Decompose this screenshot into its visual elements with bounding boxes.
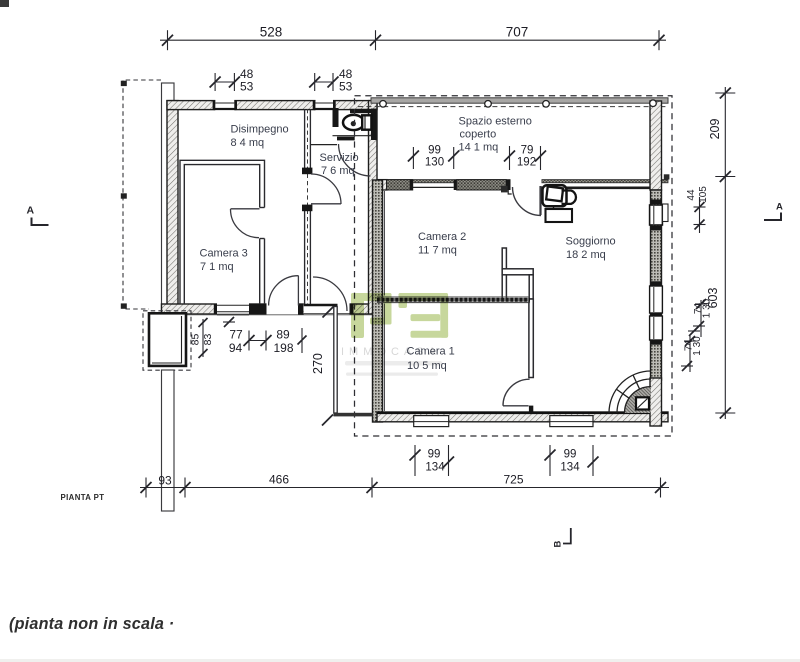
svg-text:89: 89 [276,328,290,342]
svg-text:134: 134 [560,462,580,474]
svg-text:134: 134 [425,462,445,474]
svg-text:44: 44 [686,189,697,201]
svg-text:1 30: 1 30 [702,298,713,318]
svg-text:IMMOCASA: IMMOCASA [341,346,441,358]
svg-text:A: A [27,205,35,217]
svg-text:53: 53 [240,80,254,94]
svg-text:coperto: coperto [460,129,497,141]
svg-text:Camera 3: Camera 3 [200,248,248,260]
svg-text:1 30: 1 30 [692,336,703,356]
svg-text:707: 707 [506,25,529,40]
svg-text:93: 93 [158,474,172,488]
svg-text:18 2 mq: 18 2 mq [566,249,606,261]
svg-text:8 4 mq: 8 4 mq [231,137,265,149]
svg-text:270: 270 [311,353,325,374]
svg-text:Soggiorno: Soggiorno [566,236,616,248]
svg-text:130: 130 [425,157,444,169]
svg-text:14 1 mq: 14 1 mq [459,142,499,154]
svg-text:A: A [776,202,783,213]
svg-text:53: 53 [339,80,353,94]
svg-text:Servizio: Servizio [320,152,359,164]
svg-text:105: 105 [698,186,709,203]
svg-text:85: 85 [190,334,202,346]
svg-text:7 6 mq: 7 6 mq [321,165,355,177]
svg-text:528: 528 [260,25,283,40]
svg-text:Spazio esterno: Spazio esterno [459,116,532,128]
svg-text:192: 192 [517,157,536,169]
svg-text:83: 83 [202,334,214,346]
svg-text:99: 99 [564,449,577,461]
svg-text:77: 77 [229,328,243,342]
svg-text:466: 466 [269,473,289,487]
svg-text:B: B [553,541,564,548]
svg-text:Disimpegno: Disimpegno [231,124,289,136]
svg-text:7 1 mq: 7 1 mq [200,261,234,273]
svg-text:Camera 2: Camera 2 [418,231,466,243]
svg-text:79: 79 [521,145,534,157]
svg-text:725: 725 [503,473,523,487]
svg-text:209: 209 [708,119,722,140]
svg-text:99: 99 [428,145,441,157]
svg-text:99: 99 [428,449,441,461]
svg-text:94: 94 [229,341,243,355]
svg-text:PIANTA PT: PIANTA PT [61,493,105,502]
svg-text:198: 198 [273,341,293,355]
svg-text:11 7 mq: 11 7 mq [418,245,457,257]
svg-text:(pianta non in scala ·: (pianta non in scala · [9,615,174,633]
